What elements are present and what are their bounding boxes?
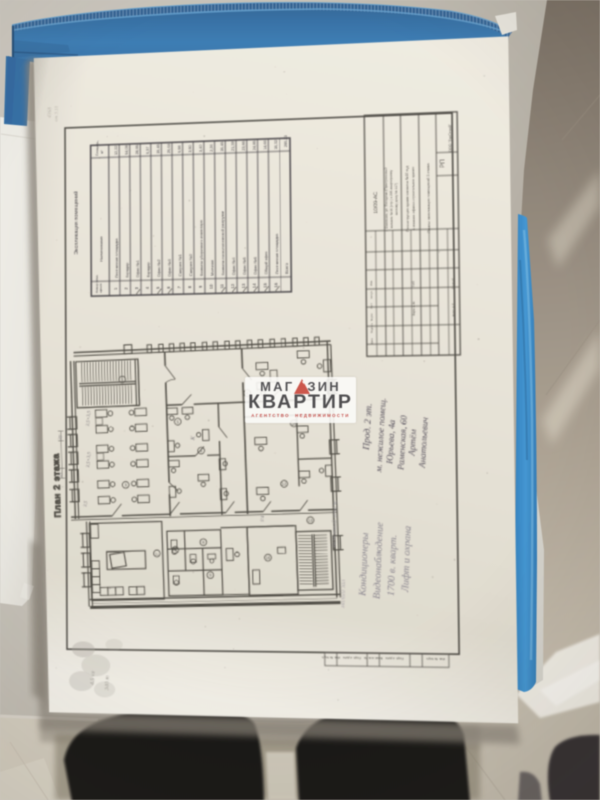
svg-text:Взам. инв. №: Взам. инв. №: [364, 656, 383, 661]
svg-text:3,90: 3,90: [188, 145, 192, 153]
svg-text:План 2 этажа: План 2 этажа: [51, 453, 63, 518]
svg-text:1: 1: [113, 287, 118, 290]
svg-text:11: 11: [155, 552, 159, 556]
svg-text:4368: 4368: [46, 107, 53, 118]
svg-text:13: 13: [241, 283, 246, 289]
svg-text:16: 16: [266, 556, 271, 560]
svg-text:7: 7: [177, 285, 182, 288]
svg-text:15: 15: [262, 282, 267, 288]
svg-text:Фирс А.Б.: Фирс А.Б.: [451, 302, 456, 317]
svg-text:6: 6: [200, 449, 202, 453]
svg-text:Офис №6: Офис №6: [253, 257, 257, 275]
svg-text:РП: РП: [439, 159, 447, 168]
svg-text:Общий офис: Общий офис: [264, 251, 268, 274]
svg-text:35,45: 35,45: [220, 142, 224, 152]
svg-text:Верх А.М.: Верх А.М.: [412, 301, 416, 316]
svg-text:Офис №3: Офис №3: [168, 259, 172, 277]
svg-text:5,37: 5,37: [146, 147, 150, 155]
svg-text:35,45: 35,45: [156, 144, 160, 154]
svg-text:24,85: 24,85: [252, 141, 256, 151]
svg-text:от 3.10: от 3.10: [54, 105, 59, 121]
svg-text:Санузел №2: Санузел №2: [189, 254, 193, 276]
svg-text:28,95: 28,95: [135, 145, 139, 155]
svg-text:340 т: 340 т: [103, 675, 111, 691]
svg-text:21,39: 21,39: [231, 141, 235, 151]
svg-text:23,86: 23,86: [242, 141, 246, 151]
svg-text:10: 10: [209, 283, 214, 289]
svg-text:Моечная: Моечная: [210, 260, 214, 276]
svg-text:14: 14: [252, 282, 257, 288]
svg-text:9: 9: [209, 573, 211, 577]
svg-text:8: 8: [202, 541, 204, 545]
svg-text:Офис №5: Офис №5: [243, 257, 247, 275]
svg-text:14,66: 14,66: [263, 140, 267, 150]
svg-text:1: 1: [121, 378, 123, 382]
svg-text:13: 13: [308, 518, 313, 522]
svg-text:3,5×3,5: 3,5×3,5: [86, 451, 92, 468]
svg-text:ООО "ГорСтрой": ООО "ГорСтрой": [448, 123, 453, 152]
svg-text:Кондиционеры: Кондиционеры: [357, 532, 371, 598]
svg-text:15,32: 15,32: [274, 140, 278, 150]
svg-text:м²: м²: [100, 150, 104, 154]
svg-text:3: 3: [125, 483, 127, 487]
svg-text:Экспликация помещений: Экспликация помещений: [73, 191, 80, 255]
svg-text:9: 9: [198, 285, 203, 288]
svg-text:Лист: Лист: [370, 302, 373, 309]
svg-text:№ док.: № док.: [370, 313, 373, 322]
svg-text:3,40: 3,40: [199, 145, 203, 153]
svg-text:3,5: 3,5: [83, 500, 89, 507]
svg-text:5'4: 5'4: [261, 515, 267, 522]
svg-text:16: 16: [273, 282, 278, 288]
svg-text:Комната уборочного инвентаря: Комната уборочного инвентаря: [199, 220, 204, 276]
svg-text:основной этаж: основной этаж: [330, 499, 339, 547]
svg-text:5: 5: [155, 286, 160, 289]
svg-text:7: 7: [174, 548, 176, 552]
svg-text:12,22: 12,22: [114, 146, 118, 156]
svg-text:Офис №2: Офис №2: [157, 259, 161, 277]
svg-text:4: 4: [145, 286, 150, 289]
svg-text:ГИП: ГИП: [411, 281, 415, 287]
svg-text:магазин №16 (стр.) к 295-кварт: магазин №16 (стр.) к 295-квартирному: [389, 169, 394, 228]
svg-text:54,08: 54,08: [125, 145, 129, 155]
svg-text:Санузел №1: Санузел №1: [178, 254, 182, 276]
svg-text:Инв. № подл.: Инв. № подл.: [426, 657, 445, 662]
svg-text:3: 3: [134, 286, 139, 289]
svg-text:4-этажное офисно-строительное: 4-этажное офисно-строительное здание: [411, 167, 416, 231]
svg-text:Планы экспликация помещений 3: Планы экспликация помещений 3 этажа: [426, 163, 431, 233]
svg-text:6: 6: [166, 286, 171, 289]
svg-text:5,98: 5,98: [178, 145, 182, 153]
svg-text:Инв. № подл.: Инв. № подл.: [321, 655, 340, 660]
svg-text:щения: щения: [99, 283, 103, 293]
svg-text:Лестничная площадка: Лестничная площадка: [115, 237, 119, 278]
svg-text:25,64: 25,64: [167, 144, 171, 154]
svg-text:Офис №1: Офис №1: [136, 260, 140, 278]
svg-text:295,23: 295,23: [284, 135, 288, 147]
svg-text:11: 11: [219, 283, 224, 288]
svg-text:12: 12: [282, 482, 287, 486]
svg-text:3,5×3,5: 3,5×3,5: [86, 410, 92, 427]
svg-text:К: К: [190, 434, 197, 441]
svg-text:Изм.: Изм.: [370, 280, 373, 286]
svg-text:Подп. и дата: Подп. и дата: [343, 656, 361, 661]
svg-text:Прод. 2 эт.: Прод. 2 эт.: [360, 403, 373, 451]
svg-text:Комната психологической разгру: Комната психологической разгрузки: [221, 211, 226, 275]
svg-text:Наименование: Наименование: [99, 236, 103, 262]
svg-text:12: 12: [230, 283, 235, 289]
svg-text:Лестничная площадка: Лестничная площадка: [275, 233, 280, 274]
svg-text:35': 35': [59, 470, 65, 477]
svg-text:1700 в. кварт.: 1700 в. кварт.: [386, 534, 399, 596]
svg-text:Видеонаблюдение: Видеонаблюдение: [371, 522, 386, 599]
svg-text:Коридор: Коридор: [125, 263, 129, 278]
svg-text:2,26: 2,26: [210, 144, 214, 152]
svg-text:8: 8: [187, 285, 192, 288]
svg-text:4.5 кв: 4.5 кв: [89, 670, 97, 685]
svg-text:Подп. и дата: Подп. и дата: [385, 656, 403, 661]
svg-text:малый зал: малый зал: [339, 579, 347, 609]
svg-text:Кол.уч: Кол.уч: [370, 290, 373, 299]
svg-text:Дата: Дата: [371, 338, 374, 344]
svg-text:2: 2: [124, 287, 129, 290]
svg-text:Разраб.: Разраб.: [451, 277, 455, 289]
svg-text:Анатольевич: Анатольевич: [416, 417, 430, 469]
svg-text:5: 5: [177, 420, 179, 424]
svg-text:Офис №4: Офис №4: [232, 258, 236, 276]
svg-text:жилому дому № 117): жилому дому № 117): [394, 183, 399, 215]
svg-text:Коридор: Коридор: [146, 262, 150, 277]
svg-text:Лифт и охрана: Лифт и охрана: [399, 525, 414, 593]
svg-text:Всего: Всего: [284, 262, 289, 274]
svg-text:Площадь,: Площадь,: [95, 140, 99, 155]
svg-text:35': 35': [58, 433, 64, 440]
svg-text:Реконструкция здания магазина: Реконструкция здания магазина №16 под: [405, 166, 410, 232]
svg-text:10/09-АС: 10/09-АС: [373, 191, 380, 213]
svg-text:Подпись: Подпись: [370, 322, 373, 333]
